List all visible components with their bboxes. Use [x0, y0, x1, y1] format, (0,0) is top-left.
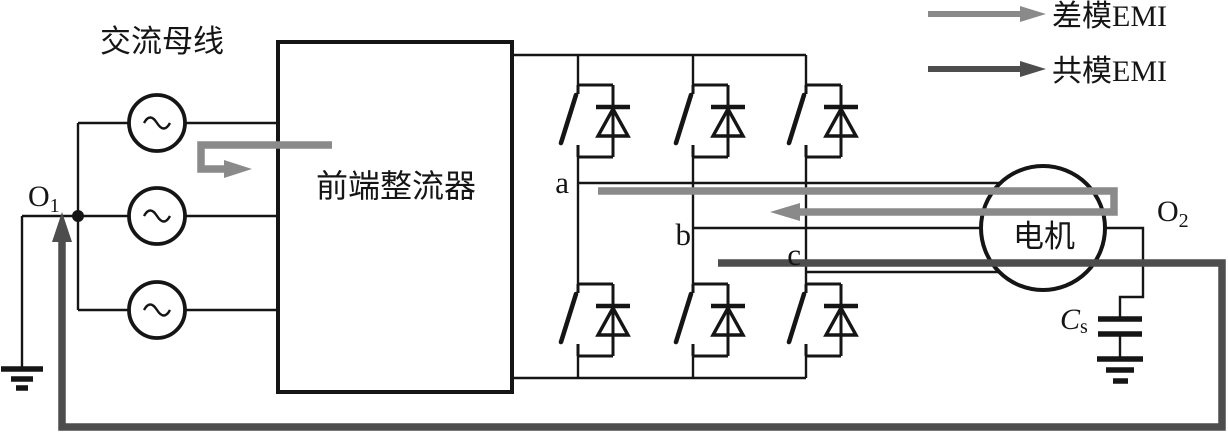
o1-junction-dot	[72, 210, 84, 222]
sine-wave-icon	[144, 211, 170, 222]
phase-c-label: c	[787, 237, 801, 272]
circuit-canvas: 差模EMI 共模EMI 交流母线 前端整流器 电机 O1 O2 a b c Cs	[0, 0, 1228, 433]
ac-bus-label: 交流母线	[100, 24, 224, 59]
legend-cm-arrow-icon	[1020, 61, 1046, 77]
legend: 差模EMI 共模EMI	[928, 0, 1167, 88]
ac-source-middle	[129, 188, 185, 244]
rectifier-box	[278, 42, 512, 392]
capacitor-cs-icon	[1098, 319, 1142, 334]
rectifier-label: 前端整流器	[316, 168, 476, 204]
dm-emi-motor-loop-path	[598, 191, 1114, 212]
switch-diode-icon-bottom-3	[789, 284, 858, 356]
sine-wave-icon	[144, 118, 170, 129]
switch-diode-icon-top-3	[789, 85, 858, 157]
sine-wave-icon	[144, 305, 170, 316]
switch-diode-icon-top-1	[561, 85, 630, 157]
phase-a-label: a	[555, 165, 569, 200]
ac-source-top	[129, 95, 185, 151]
cm-emi-loop-path	[62, 240, 1222, 427]
dm-arrow-left-icon	[770, 203, 800, 221]
ground-icon-right	[1097, 359, 1143, 381]
switch-diode-icon-bottom-2	[676, 284, 745, 356]
ground-icon-left	[1, 369, 43, 388]
motor-neutral-wire	[1105, 228, 1143, 319]
dm-arrow-right-icon	[224, 160, 252, 178]
inverter-cells	[561, 85, 858, 356]
switch-diode-icon-top-2	[676, 85, 745, 157]
legend-cm-label: 共模EMI	[1052, 55, 1167, 88]
ac-source-bottom	[129, 282, 185, 338]
o1-node-label: O1	[28, 180, 60, 217]
dc-bus-wiring	[512, 55, 806, 378]
motor-label: 电机	[1013, 219, 1075, 254]
cs-capacitor-label: Cs	[1060, 303, 1088, 338]
phase-b-label: b	[676, 217, 692, 252]
legend-dm-label: 差模EMI	[1052, 0, 1167, 33]
legend-dm-arrow-icon	[1020, 6, 1046, 22]
o2-node-label: O2	[1157, 195, 1189, 232]
switch-diode-icon-bottom-1	[561, 284, 630, 356]
emi-circuit-diagram: 差模EMI 共模EMI 交流母线 前端整流器 电机 O1 O2 a b c Cs	[0, 0, 1228, 433]
cm-emi-paths	[62, 240, 1222, 427]
